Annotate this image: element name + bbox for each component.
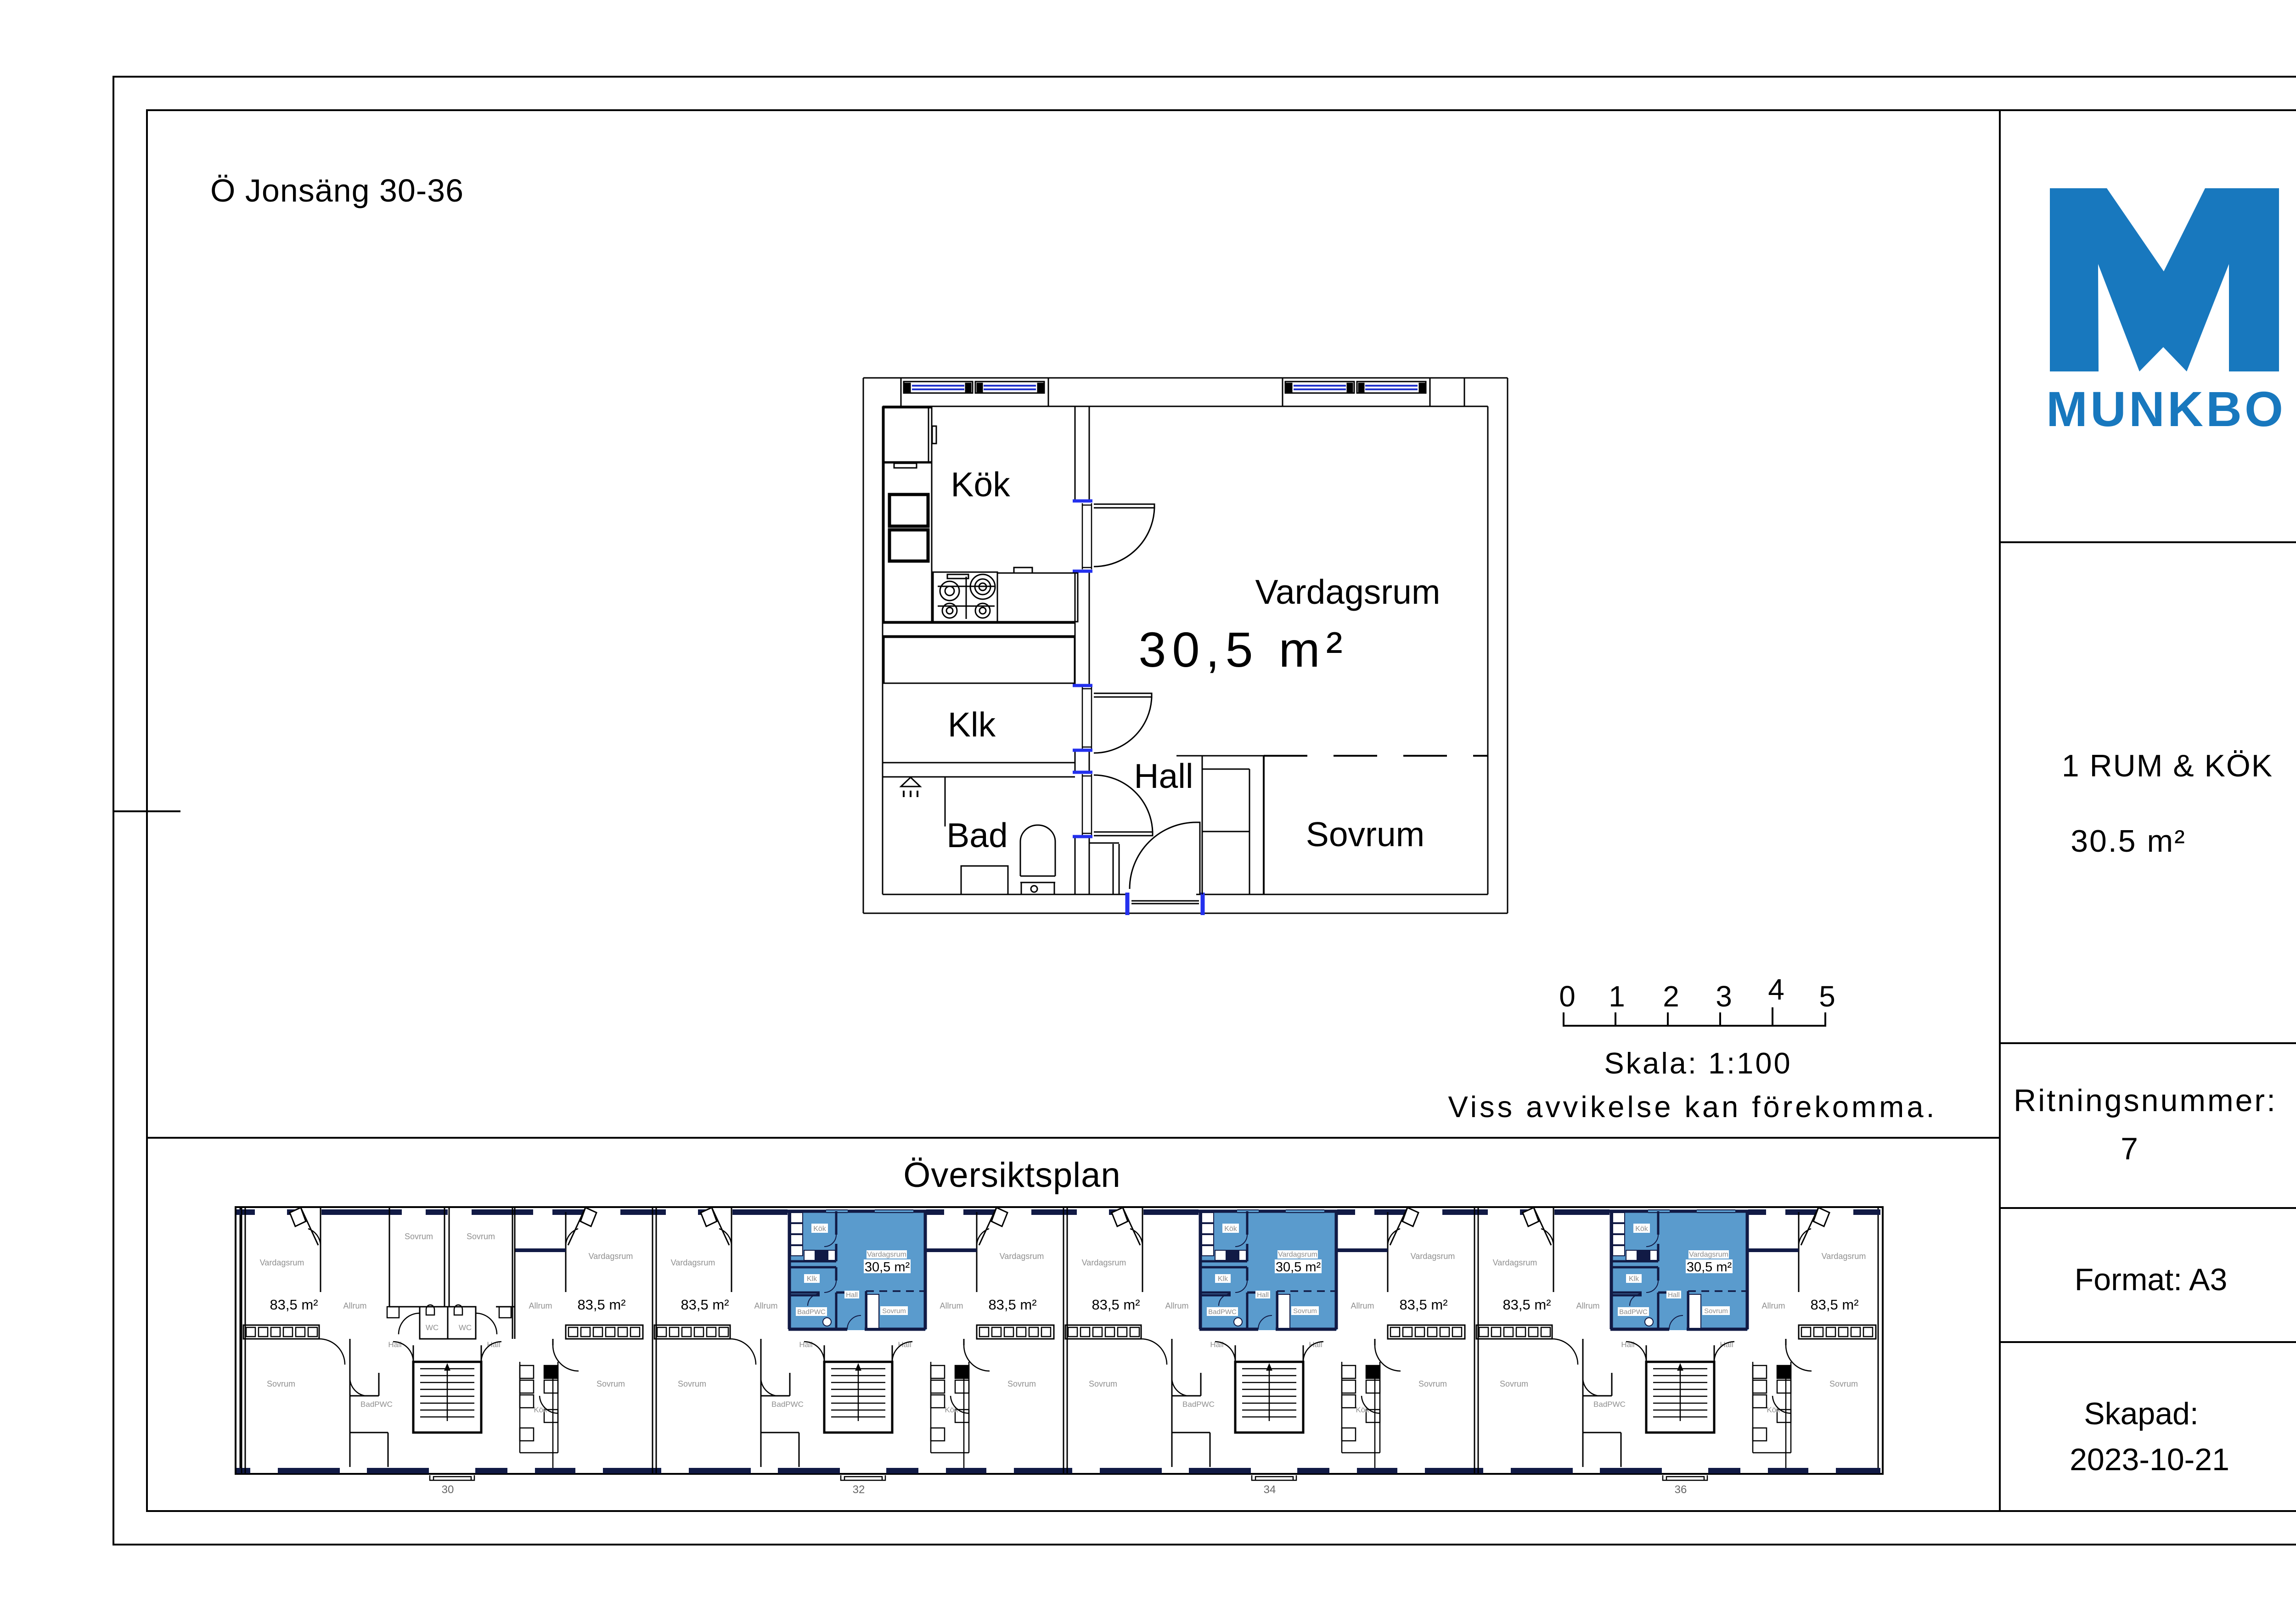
- svg-text:Skapad:: Skapad:: [2084, 1396, 2199, 1431]
- svg-text:WC: WC: [459, 1323, 472, 1332]
- svg-text:Vardagsrum: Vardagsrum: [1255, 573, 1441, 611]
- svg-text:Klk: Klk: [948, 705, 996, 744]
- svg-text:Bad: Bad: [946, 816, 1007, 854]
- svg-text:1 RUM & KÖK: 1 RUM & KÖK: [2062, 748, 2273, 783]
- svg-text:30: 30: [442, 1484, 454, 1496]
- svg-text:Skala: 1:100: Skala: 1:100: [1604, 1046, 1792, 1080]
- svg-text:30.5 m²: 30.5 m²: [2071, 824, 2186, 859]
- svg-text:32: 32: [853, 1484, 865, 1496]
- svg-text:Viss avvikelse kan förekomma.: Viss avvikelse kan förekomma.: [1448, 1090, 1937, 1124]
- svg-text:Kök: Kök: [951, 465, 1010, 504]
- svg-text:5: 5: [1819, 980, 1835, 1013]
- svg-text:Sovrum: Sovrum: [467, 1232, 495, 1241]
- svg-text:7: 7: [2121, 1131, 2138, 1166]
- svg-text:Ritningsnummer:: Ritningsnummer:: [2014, 1083, 2277, 1118]
- svg-text:2023-10-21: 2023-10-21: [2070, 1442, 2229, 1477]
- svg-text:MUNKBO: MUNKBO: [2046, 381, 2286, 437]
- svg-text:Hall: Hall: [1134, 757, 1193, 795]
- svg-text:Översiktsplan: Översiktsplan: [903, 1156, 1120, 1195]
- svg-text:30,5 m²: 30,5 m²: [1138, 622, 1348, 677]
- svg-text:34: 34: [1264, 1484, 1276, 1496]
- svg-text:3: 3: [1716, 980, 1732, 1013]
- svg-text:Sovrum: Sovrum: [1306, 815, 1424, 854]
- svg-text:WC: WC: [426, 1323, 439, 1332]
- svg-text:4: 4: [1768, 973, 1784, 1006]
- svg-text:36: 36: [1675, 1484, 1687, 1496]
- svg-text:Ö Jonsäng 30-36: Ö Jonsäng 30-36: [210, 173, 464, 208]
- svg-text:2: 2: [1663, 980, 1679, 1013]
- svg-text:Format: A3: Format: A3: [2075, 1262, 2228, 1297]
- svg-text:0: 0: [1559, 980, 1576, 1013]
- svg-text:Sovrum: Sovrum: [405, 1232, 433, 1241]
- svg-text:1: 1: [1609, 980, 1625, 1013]
